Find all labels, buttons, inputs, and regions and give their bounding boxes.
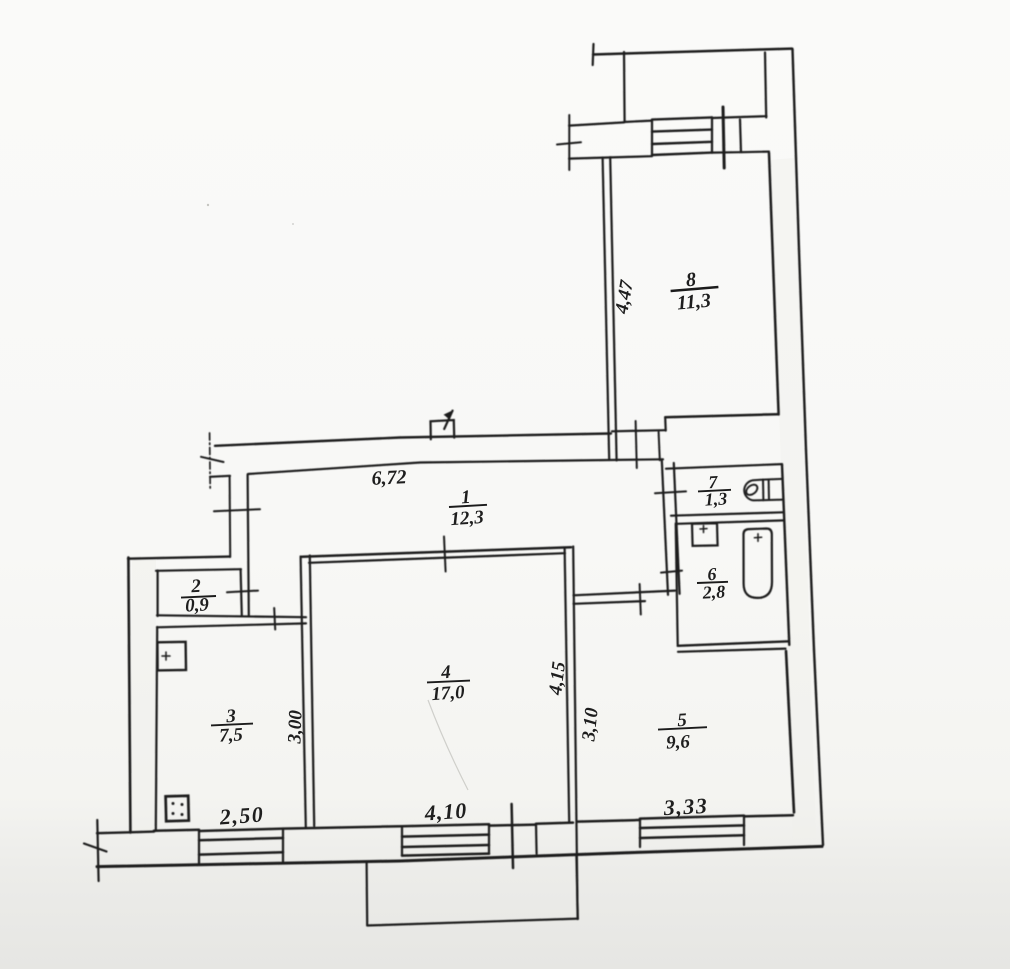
svg-text:2,50: 2,50 [218,801,265,829]
svg-text:1: 1 [460,487,471,509]
svg-text:3,00: 3,00 [284,709,306,744]
svg-text:17,0: 17,0 [431,682,466,705]
svg-text:4,15: 4,15 [545,660,570,697]
svg-text:8: 8 [685,269,697,292]
svg-text:0,9: 0,9 [185,594,210,616]
svg-text:3,33: 3,33 [662,793,709,820]
svg-text:1,3: 1,3 [704,488,728,509]
svg-text:4,47: 4,47 [611,277,638,316]
svg-text:2,8: 2,8 [701,581,726,602]
svg-text:7,5: 7,5 [219,724,244,746]
svg-text:11,3: 11,3 [676,290,712,315]
svg-text:6,72: 6,72 [371,466,407,490]
svg-text:12,3: 12,3 [450,507,485,530]
svg-text:3,10: 3,10 [578,706,603,743]
svg-text:4,10: 4,10 [423,798,468,826]
svg-text:4: 4 [440,662,452,684]
svg-text:5: 5 [677,710,688,731]
svg-text:9,6: 9,6 [666,731,691,753]
